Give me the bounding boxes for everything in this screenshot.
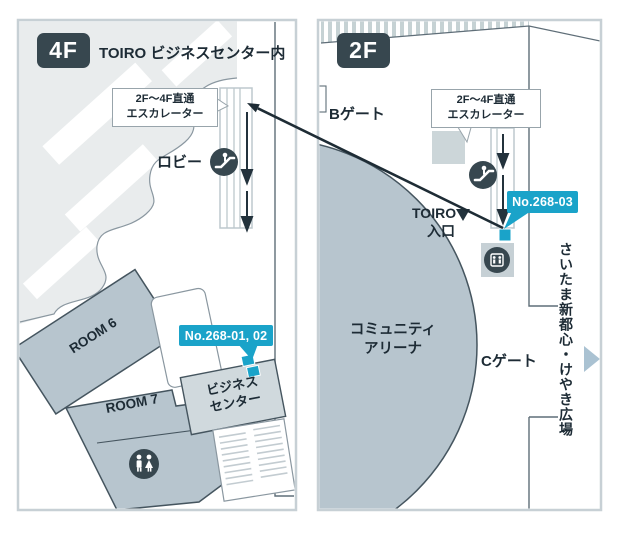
callout-line: エスカレーター xyxy=(434,108,538,123)
callout-line: 2F〜4F直通 xyxy=(434,93,538,108)
elevator-icon xyxy=(484,247,510,273)
gate-c-label: Cゲート xyxy=(481,350,537,371)
stairs-hatch xyxy=(213,419,295,501)
plaza-label: さいたま新都心・けやき広場 xyxy=(556,242,576,474)
escalator-callout-4f: 2F〜4F直通 エスカレーター xyxy=(112,88,218,127)
callout-line: エスカレーター xyxy=(115,107,215,122)
arena-label: コミュニティ アリーナ xyxy=(343,321,443,359)
restroom-icon xyxy=(129,449,159,479)
escalator-callout-2f: 2F〜4F直通 エスカレーター xyxy=(431,89,541,128)
floor-map-page: 4F TOIRO ビジネスセンター内 2F〜4F直通 エスカレーター ロビー R… xyxy=(0,0,617,535)
floor-badge-4f: 4F xyxy=(37,33,90,68)
toiro-entrance-label-line2: 入口 xyxy=(427,221,455,241)
escalator-icon xyxy=(469,161,497,189)
booth-square-2f xyxy=(499,229,511,241)
floor-badge-2f: 2F xyxy=(337,33,390,68)
arena-line2: アリーナ xyxy=(343,340,443,359)
area-note-4f: TOIRO ビジネスセンター内 xyxy=(99,42,285,63)
utility-square xyxy=(432,131,465,164)
elevator-area xyxy=(481,243,514,277)
gate-b-label: Bゲート xyxy=(329,103,385,124)
map-canvas xyxy=(0,0,617,535)
lobby-label: ロビー xyxy=(157,151,202,172)
booth-badge-2f: No.268-03 xyxy=(507,191,578,213)
callout-line: 2F〜4F直通 xyxy=(115,92,215,107)
arena-line1: コミュニティ xyxy=(343,321,443,340)
booth-badge-4f: No.268-01, 02 xyxy=(179,325,273,346)
escalator-icon xyxy=(210,148,238,176)
toiro-entrance-label-line1: TOIRO xyxy=(412,205,456,221)
